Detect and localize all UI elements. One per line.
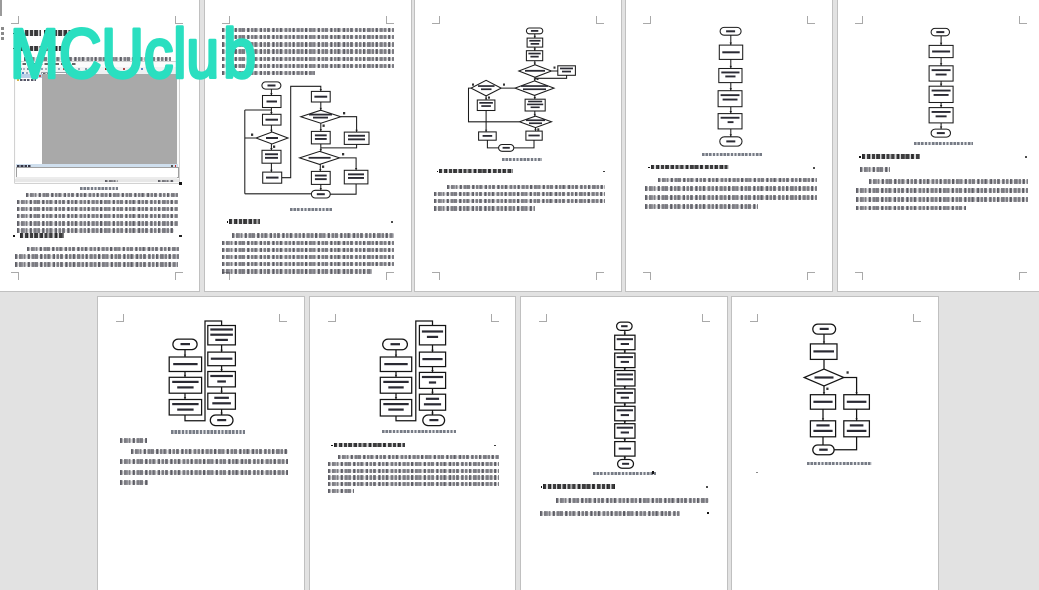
svg-text:MCUclub: MCUclub — [10, 18, 256, 93]
